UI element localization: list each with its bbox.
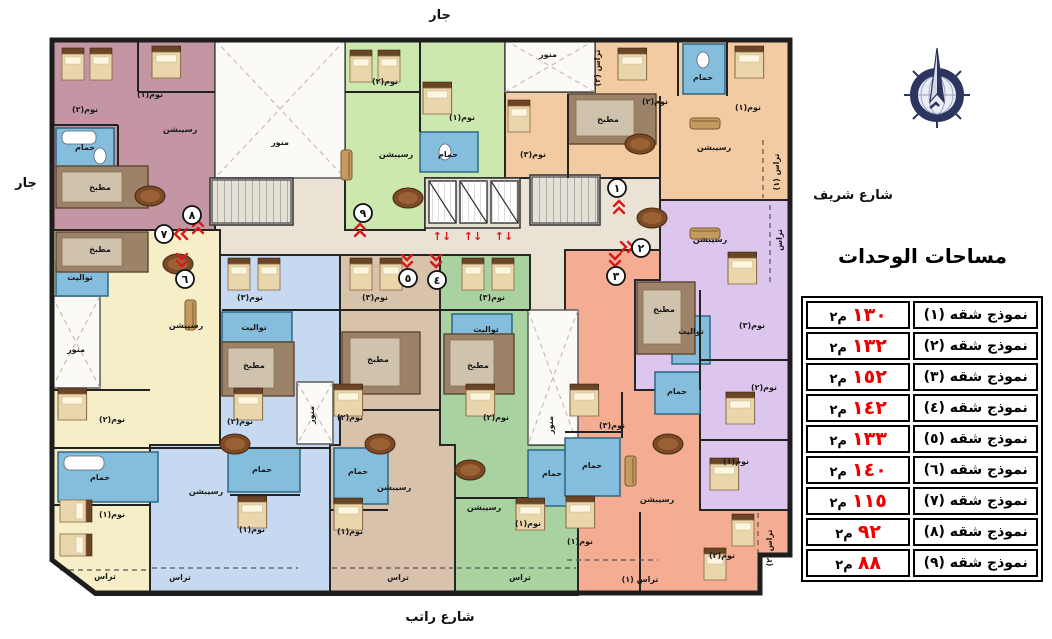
room-label: منور [270,138,289,147]
elevator-arrows-icon: ↑↓ [464,230,482,243]
bed-icon [566,496,595,528]
unit-area-value: ١٤٢ م٢ [806,394,910,422]
room-label: تراس [509,573,531,583]
room-label: حمام [90,473,110,482]
unit-model-label: نموذج شقه (٥) [913,425,1038,453]
room-label: تراس [94,572,116,582]
room-label: نوم(٣) [739,321,765,330]
bed-icon [726,392,755,424]
unit-model-label: نموذج شقه (٣) [913,363,1038,391]
room-label: رسيبشن [169,321,204,330]
elevator-arrows-icon: ↑↓ [495,230,513,243]
legend-title: مساحات الوحدات [800,244,1045,268]
room-label: مطبخ [89,183,111,192]
unit-area-value: ١٥٢ م٢ [806,363,910,391]
room-label: تواليت [67,273,93,282]
tbl-icon [625,134,655,154]
label-sherif-street: شارع شريف [798,188,908,203]
bed-icon [60,534,92,556]
room-label: رسيبشن [640,495,675,504]
bed-icon [334,498,363,530]
room-label: رسيبشن [377,483,412,492]
room-label: رسيبشن [189,487,224,496]
unit-area-value: ١٣٢ م٢ [806,332,910,360]
room-label: نوم(٢) [751,383,777,392]
tbl-icon [653,434,683,454]
room-label: حمام [438,150,458,159]
legend-row: نموذج شقه (٤)١٤٢ م٢ [806,394,1038,422]
room-label: منور [538,50,557,59]
bed-icon [258,258,280,290]
room-label: نوم(٢) [483,413,509,422]
toilet-icon [697,52,709,68]
room-label: تواليت [473,325,499,334]
tbl-icon [135,186,165,206]
elevator-arrows-icon: ↑↓ [433,230,451,243]
floor-plan: نوم(٢)نوم(١)رسيبشنحماممطبخمنورنوم(٢)نوم(… [0,0,800,639]
legend-row: نموذج شقه (١)١٣٠ م٢ [806,301,1038,329]
legend-row: نموذج شقه (٩)٨٨ م٢ [806,549,1038,577]
bed-icon [228,258,250,290]
unit-model-label: نموذج شقه (٤) [913,394,1038,422]
bed-icon [735,46,764,78]
sofa-icon [341,150,352,180]
apartment-5-area [330,255,455,595]
unit-model-label: نموذج شقه (٦) [913,456,1038,484]
bed-icon [618,48,647,80]
bed-icon [350,258,372,290]
room-label: رسيبشن [467,503,502,512]
room-label: منور [66,345,85,354]
room-label: نوم(١) [735,103,761,112]
room-label: نوم(١) [723,457,749,466]
room-label: نوم(١) [515,519,541,528]
bed-icon [234,388,263,420]
unit-model-label: نموذج شقه (٢) [913,332,1038,360]
legend-row: نموذج شقه (٨)٩٢ م٢ [806,518,1038,546]
room-label: حمام [667,387,687,396]
tbl-icon [455,460,485,480]
tbl-icon [220,434,250,454]
elevator-shaft-icon [429,181,518,223]
unit-area-value: ١٤٠ م٢ [806,456,910,484]
unit-number-text: ٢ [638,242,645,255]
unit-number-text: ٣ [613,270,620,283]
room-label: نوم(١) [239,525,265,534]
unit-model-label: نموذج شقه (٨) [913,518,1038,546]
room-label: منور [307,406,316,425]
room-label: مطبخ [467,361,489,370]
unit-model-label: نموذج شقه (١) [913,301,1038,329]
room-label: نوم(٢) [72,105,98,114]
sofa-icon [625,456,636,486]
compass-rose-icon [880,38,995,153]
room-label: حمام [693,73,713,82]
unit-number-text: ٩ [360,207,367,220]
unit-model-label: نموذج شقه (٩) [913,549,1038,577]
room-label: نوم(١) [449,113,475,122]
unit-number-text: ١ [614,182,621,195]
floorplan-page: جار جار شارع شريف شارع راتب [0,0,1052,639]
room-label: مطبخ [243,361,265,370]
bed-icon [334,384,363,416]
bathtub-icon [64,456,104,470]
room-label: نوم(٢) [372,77,398,86]
unit-area-value: ١٣٣ م٢ [806,425,910,453]
room-label: تراس (٢) [765,530,775,567]
room-label: رسيبشن [163,125,198,134]
room-label: حمام [582,461,602,470]
tbl-icon [393,188,423,208]
bed-icon [380,258,402,290]
unit-area-value: ١١٥ م٢ [806,487,910,515]
toilet-icon [94,148,106,164]
room-label: نوم(٢) [709,551,735,560]
room-label: تراس [387,573,409,583]
room-label: تواليت [241,323,267,332]
tbl-icon [637,208,667,228]
bed-icon [62,48,84,80]
room-label: منور [546,416,555,435]
bed-icon [60,500,92,522]
room-label: نوم(٣) [479,293,505,302]
unit-area-value: ٩٢ م٢ [806,518,910,546]
room-label: مطبخ [367,355,389,364]
legend-row: نموذج شقه (٦)١٤٠ م٢ [806,456,1038,484]
room-label: مطبخ [597,115,619,124]
room-label: نوم(١) [337,527,363,536]
room-label: نوم(٢) [99,415,125,424]
room-label: نوم(٢) [227,417,253,426]
room-label: رسيبشن [693,235,728,244]
legend-row: نموذج شقه (٣)١٥٢ م٢ [806,363,1038,391]
unit-number-text: ٨ [189,209,196,222]
bed-icon [492,258,514,290]
room-label: حمام [252,465,272,474]
room-label: حمام [542,469,562,478]
room-label: حمام [348,467,368,476]
sofa-icon [690,118,720,129]
bed-icon [508,100,530,132]
room-label: نوم(٣) [237,293,263,302]
unit-model-label: نموذج شقه (٧) [913,487,1038,515]
room-label: نوم(٣) [599,421,625,430]
bed-icon [58,388,87,420]
room-label: رسيبشن [379,150,414,159]
bed-icon [238,496,267,528]
tbl-icon [365,434,395,454]
bed-icon [90,48,112,80]
bed-icon [423,82,452,114]
room-label: تواليت [678,327,704,336]
room-label: نوم(١) [567,537,593,546]
bed-icon [350,50,372,82]
unit-number-text: ٥ [405,272,412,285]
room-label: نوم(٣) [362,293,388,302]
bed-icon [570,384,599,416]
room-label: رسيبشن [697,143,732,152]
unit-number-text: ٧ [161,228,168,241]
legend-row: نموذج شقه (٢)١٣٢ م٢ [806,332,1038,360]
room-label: نوم(٢) [337,413,363,422]
room-label: مطبخ [89,245,111,254]
bed-icon [728,252,757,284]
unit-area-value: ٨٨ م٢ [806,549,910,577]
room-label: تراس [775,229,785,251]
unit-areas-table: نموذج شقه (١)١٣٠ م٢نموذج شقه (٢)١٣٢ م٢نم… [801,296,1043,582]
room-label: مطبخ [653,305,675,314]
unit-area-value: ١٣٠ م٢ [806,301,910,329]
room-label: تراس (١) [772,154,782,191]
bed-icon [152,46,181,78]
bed-icon [462,258,484,290]
elevator-bank [425,178,520,228]
room-label: نوم(٢) [642,97,668,106]
room-label: نوم(١) [137,90,163,99]
room-label: تراس (٢) [593,50,603,87]
unit-number-text: ٦ [182,273,189,286]
bed-icon [466,384,495,416]
room-label: نوم(١) [99,510,125,519]
room-label: تراس (١) [622,575,659,585]
legend-row: نموذج شقه (٧)١١٥ م٢ [806,487,1038,515]
room-label: تراس [169,573,191,583]
bed-icon [732,514,754,546]
room-label: نوم(٣) [520,150,546,159]
room-label: حمام [75,143,95,152]
unit-number-text: ٤ [434,274,441,287]
legend-row: نموذج شقه (٥)١٣٣ م٢ [806,425,1038,453]
